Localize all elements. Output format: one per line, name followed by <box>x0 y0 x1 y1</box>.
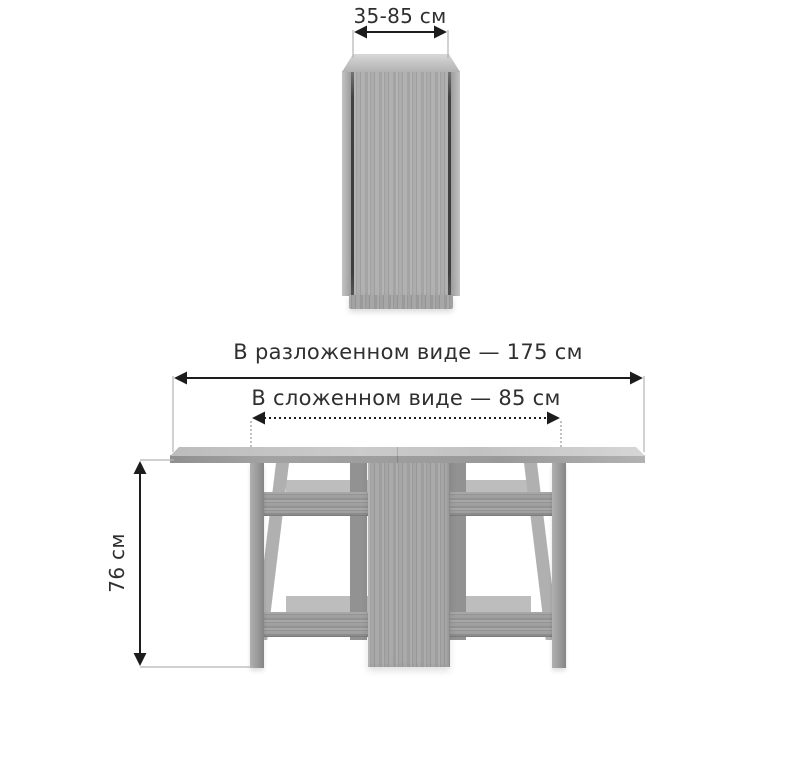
tabletop-front-edge <box>170 455 645 463</box>
outer-leg-right <box>552 463 566 668</box>
tabletop-seam <box>397 447 398 463</box>
product-dimensions-diagram: 35-85 см В разложенном виде — 175 см В с… <box>0 0 800 762</box>
center-pedestal <box>368 456 450 667</box>
outer-leg-left <box>250 463 264 668</box>
front-rail-lower-right <box>447 612 559 637</box>
unfolded-table-illustration <box>0 0 800 762</box>
front-rail-upper-left <box>257 492 369 516</box>
tabletop-surface <box>170 447 645 456</box>
front-rail-lower-left <box>257 612 369 637</box>
front-rail-upper-right <box>447 492 559 516</box>
